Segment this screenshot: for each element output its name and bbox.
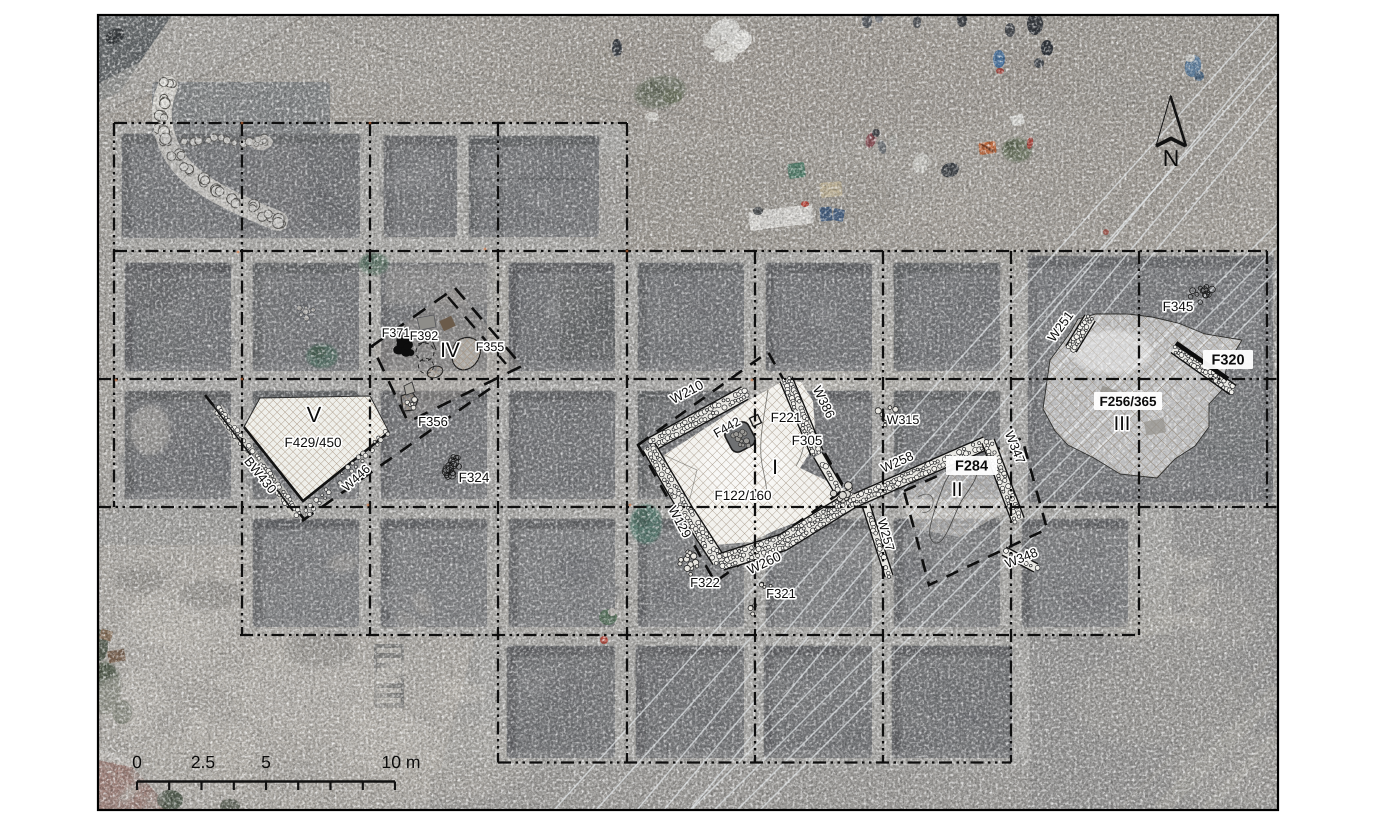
svg-text:F345: F345 xyxy=(1163,299,1194,314)
svg-text:F322: F322 xyxy=(690,575,720,590)
svg-text:F324: F324 xyxy=(459,470,490,485)
svg-text:F429/450: F429/450 xyxy=(284,435,341,450)
svg-text:III: III xyxy=(1114,413,1131,435)
svg-text:0: 0 xyxy=(132,752,142,772)
svg-text:V: V xyxy=(307,402,322,427)
svg-text:10 m: 10 m xyxy=(382,752,421,772)
svg-text:F392: F392 xyxy=(410,329,439,343)
svg-text:F320: F320 xyxy=(1211,353,1244,369)
svg-text:F355: F355 xyxy=(476,340,505,354)
svg-text:F256/365: F256/365 xyxy=(1099,394,1157,409)
svg-text:I: I xyxy=(772,456,778,479)
svg-text:5: 5 xyxy=(261,752,271,772)
svg-text:IV: IV xyxy=(440,339,460,362)
svg-text:2.5: 2.5 xyxy=(191,752,215,772)
svg-text:W315: W315 xyxy=(887,413,920,427)
svg-text:II: II xyxy=(951,479,962,501)
svg-text:F371: F371 xyxy=(382,326,411,340)
svg-text:F321: F321 xyxy=(766,586,796,601)
svg-text:F356: F356 xyxy=(418,414,448,429)
svg-text:F122/160: F122/160 xyxy=(714,488,771,503)
svg-text:F305: F305 xyxy=(792,433,823,448)
svg-text:F284: F284 xyxy=(955,459,988,475)
svg-text:N: N xyxy=(1163,145,1180,171)
svg-text:F221: F221 xyxy=(771,410,802,425)
